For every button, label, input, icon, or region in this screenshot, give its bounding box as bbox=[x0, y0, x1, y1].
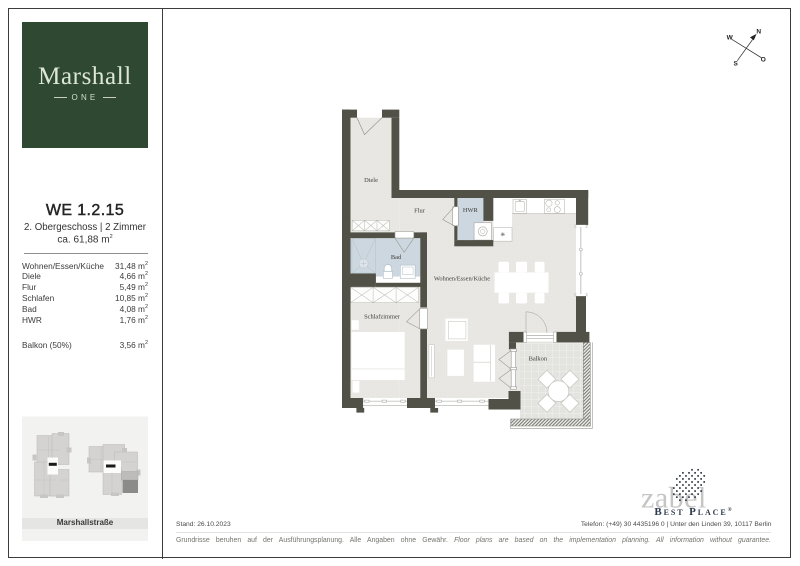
svg-text:W: W bbox=[727, 35, 734, 42]
svg-text:Flur: Flur bbox=[414, 208, 426, 215]
svg-text:S: S bbox=[734, 60, 739, 67]
svg-text:Balkon: Balkon bbox=[529, 356, 548, 363]
svg-text:Schlafzimmer: Schlafzimmer bbox=[364, 314, 401, 321]
svg-text:Best Place®: Best Place® bbox=[654, 506, 733, 518]
svg-text:Diele: Diele bbox=[364, 177, 378, 184]
svg-text:O: O bbox=[761, 57, 766, 64]
svg-text:Wohnen/Essen/Küche: Wohnen/Essen/Küche bbox=[434, 276, 490, 283]
svg-text:Bad: Bad bbox=[391, 254, 402, 261]
svg-text:HWR: HWR bbox=[463, 207, 479, 214]
svg-text:N: N bbox=[756, 28, 761, 35]
